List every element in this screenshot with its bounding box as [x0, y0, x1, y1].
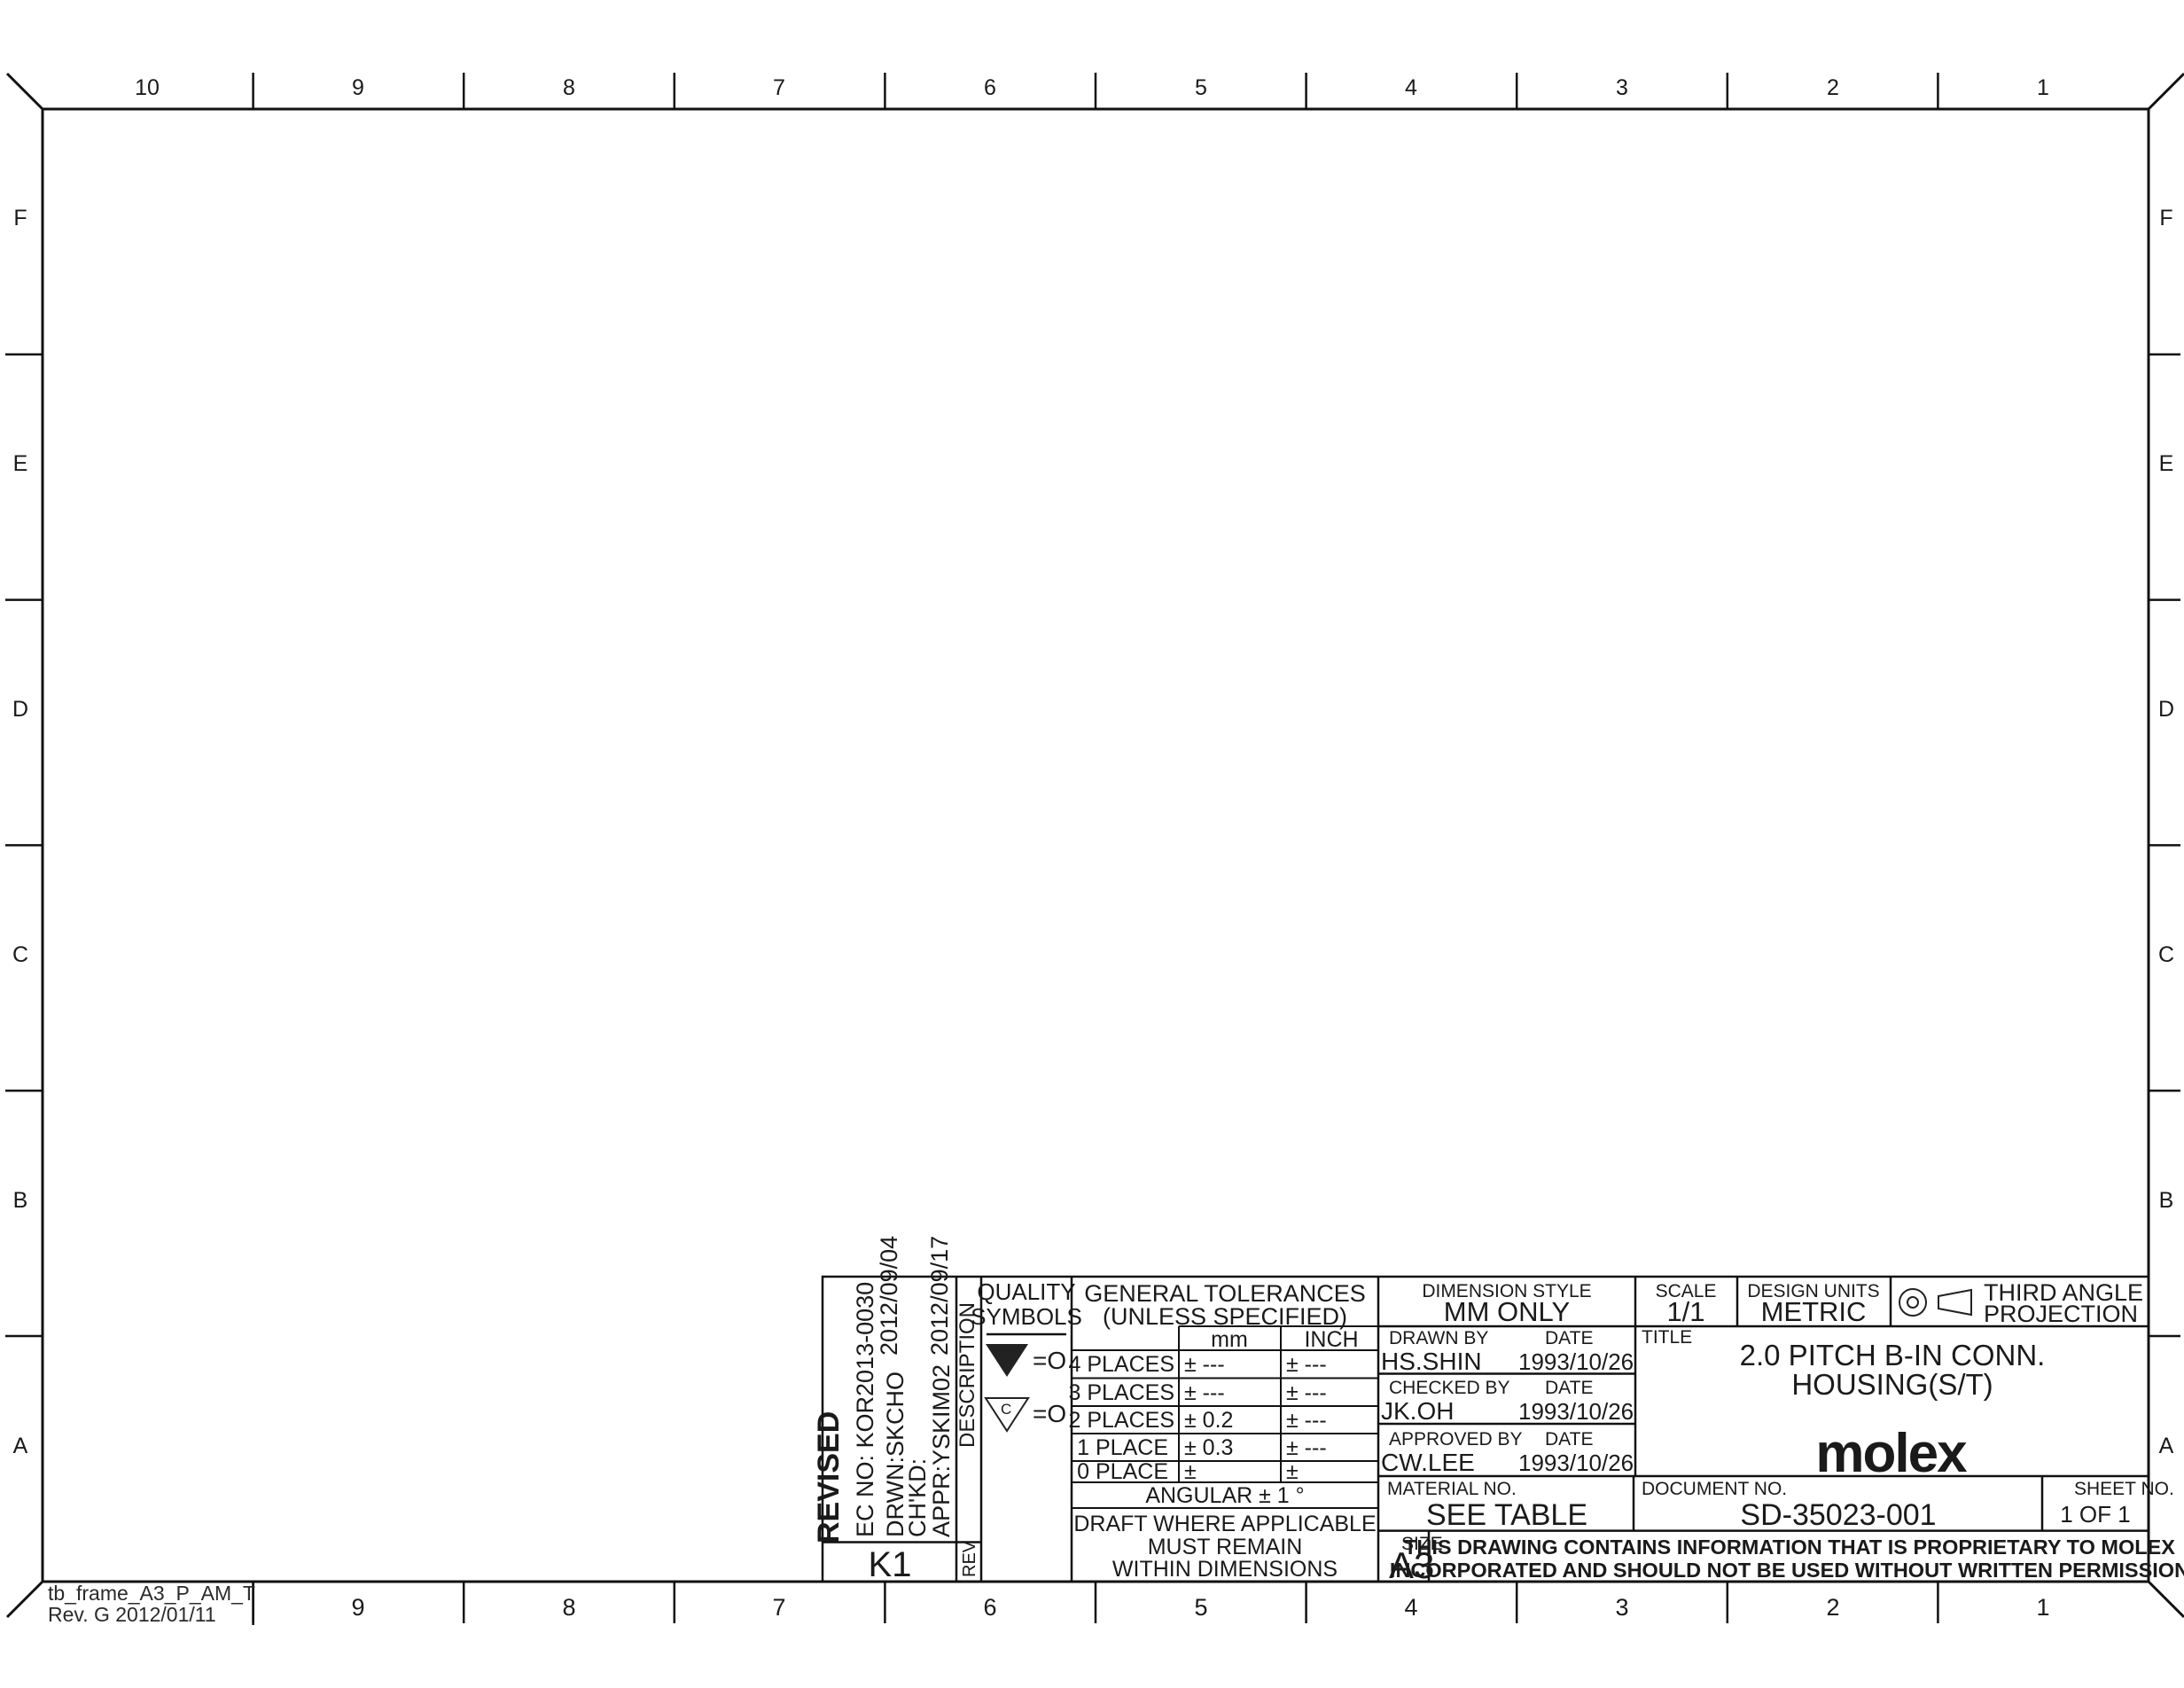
- svg-text:1/1: 1/1: [1666, 1296, 1704, 1327]
- svg-text:D: D: [12, 697, 28, 722]
- svg-text:7: 7: [773, 75, 785, 100]
- svg-text:2012/09/17: 2012/09/17: [926, 1236, 953, 1356]
- svg-text:PROJECTION: PROJECTION: [1984, 1301, 2138, 1327]
- svg-text:tb_frame_A3_P_AM_T: tb_frame_A3_P_AM_T: [48, 1582, 255, 1605]
- svg-text:B: B: [2159, 1188, 2174, 1213]
- svg-text:1: 1: [2036, 1594, 2049, 1621]
- svg-text:2012/09/04: 2012/09/04: [876, 1236, 902, 1356]
- svg-text:SD-35023-001: SD-35023-001: [1740, 1498, 1936, 1532]
- svg-text:WITHIN DIMENSIONS: WITHIN DIMENSIONS: [1112, 1557, 1338, 1582]
- svg-text:=O: =O: [1033, 1347, 1066, 1374]
- svg-text:± 0.2: ± 0.2: [1184, 1408, 1233, 1433]
- svg-text:A: A: [13, 1434, 28, 1458]
- svg-text:MM ONLY: MM ONLY: [1444, 1296, 1570, 1327]
- svg-text:B: B: [13, 1188, 28, 1213]
- svg-text:EC NO: KOR2013-0030: EC NO: KOR2013-0030: [852, 1282, 878, 1537]
- svg-text:DRAWN BY: DRAWN BY: [1389, 1328, 1488, 1348]
- svg-text:1 PLACE: 1 PLACE: [1077, 1435, 1168, 1460]
- svg-text:REVISED: REVISED: [812, 1411, 846, 1543]
- svg-text:HS.SHIN: HS.SHIN: [1381, 1348, 1482, 1375]
- svg-text:CHECKED BY: CHECKED BY: [1389, 1378, 1510, 1398]
- svg-text:ANGULAR ± 1 °: ANGULAR ± 1 °: [1145, 1483, 1304, 1508]
- svg-text:DATE: DATE: [1545, 1378, 1593, 1398]
- svg-text:± ---: ± ---: [1286, 1408, 1327, 1433]
- svg-text:SHEET NO.: SHEET NO.: [2074, 1479, 2174, 1499]
- svg-text:MUST REMAIN: MUST REMAIN: [1148, 1535, 1303, 1559]
- svg-text:F: F: [13, 206, 27, 231]
- svg-text:C: C: [1001, 1401, 1011, 1418]
- svg-text:8: 8: [562, 1594, 575, 1621]
- svg-text:HOUSING(S/T): HOUSING(S/T): [1791, 1368, 1993, 1401]
- svg-text:APPROVED BY: APPROVED BY: [1389, 1429, 1523, 1450]
- svg-text:A: A: [2159, 1434, 2174, 1458]
- svg-text:TITLE: TITLE: [1642, 1327, 1692, 1348]
- svg-text:JK.OH: JK.OH: [1381, 1397, 1454, 1425]
- svg-text:K1: K1: [869, 1545, 912, 1584]
- svg-text:REV: REV: [960, 1540, 979, 1577]
- svg-text:DOCUMENT NO.: DOCUMENT NO.: [1642, 1479, 1787, 1499]
- svg-text:DATE: DATE: [1545, 1429, 1593, 1450]
- svg-text:2: 2: [1826, 1594, 1839, 1621]
- svg-text:E: E: [13, 451, 28, 476]
- svg-text:molex: molex: [1815, 1423, 1968, 1484]
- svg-text:± ---: ± ---: [1286, 1380, 1327, 1405]
- svg-text:± ---: ± ---: [1184, 1352, 1225, 1377]
- svg-text:± ---: ± ---: [1184, 1380, 1225, 1405]
- svg-text:3: 3: [1616, 75, 1628, 100]
- svg-text:± ---: ± ---: [1286, 1435, 1327, 1460]
- svg-text:SYMBOLS: SYMBOLS: [971, 1303, 1082, 1330]
- svg-text:E: E: [2159, 451, 2174, 476]
- svg-text:1993/10/26: 1993/10/26: [1518, 1398, 1634, 1425]
- svg-text:1993/10/26: 1993/10/26: [1518, 1450, 1634, 1476]
- svg-text:0 PLACE: 0 PLACE: [1077, 1459, 1168, 1484]
- svg-text:7: 7: [772, 1594, 785, 1621]
- svg-text:10: 10: [135, 75, 160, 100]
- svg-text:D: D: [2158, 697, 2174, 722]
- svg-text:2 PLACES: 2 PLACES: [1068, 1408, 1174, 1433]
- svg-text:MATERIAL NO.: MATERIAL NO.: [1387, 1479, 1517, 1499]
- svg-text:METRIC: METRIC: [1761, 1296, 1867, 1327]
- svg-text:DRAFT WHERE APPLICABLE: DRAFT WHERE APPLICABLE: [1073, 1512, 1376, 1536]
- svg-text:±: ±: [1286, 1459, 1299, 1484]
- svg-text:3 PLACES: 3 PLACES: [1068, 1380, 1174, 1405]
- svg-text:2.0 PITCH B-IN CONN.: 2.0 PITCH B-IN CONN.: [1740, 1339, 2046, 1371]
- svg-text:5: 5: [1194, 1594, 1207, 1621]
- svg-text:3: 3: [1615, 1594, 1628, 1621]
- svg-text:4: 4: [1405, 75, 1417, 100]
- svg-text:1: 1: [2037, 75, 2049, 100]
- svg-text:8: 8: [563, 75, 575, 100]
- svg-text:mm: mm: [1211, 1327, 1248, 1352]
- svg-text:± ---: ± ---: [1286, 1352, 1327, 1377]
- svg-text:5: 5: [1195, 75, 1207, 100]
- svg-text:CH'KD:: CH'KD:: [904, 1458, 931, 1537]
- svg-text:(UNLESS SPECIFIED): (UNLESS SPECIFIED): [1103, 1303, 1347, 1330]
- svg-text:INCORPORATED AND SHOULD NOT BE: INCORPORATED AND SHOULD NOT BE USED WITH…: [1390, 1559, 2184, 1582]
- svg-text:± 0.3: ± 0.3: [1184, 1435, 1233, 1460]
- svg-text:6: 6: [984, 75, 996, 100]
- svg-text:4: 4: [1404, 1594, 1417, 1621]
- svg-text:F: F: [2159, 206, 2172, 231]
- svg-text:6: 6: [983, 1594, 996, 1621]
- svg-text:CW.LEE: CW.LEE: [1381, 1449, 1475, 1476]
- svg-text:THIS DRAWING CONTAINS INFORMAT: THIS DRAWING CONTAINS INFORMATION THAT I…: [1404, 1536, 2175, 1559]
- svg-text:SEE TABLE: SEE TABLE: [1426, 1498, 1587, 1532]
- svg-text:Rev. G 2012/01/11: Rev. G 2012/01/11: [48, 1603, 216, 1626]
- svg-text:QUALITY: QUALITY: [977, 1278, 1075, 1305]
- svg-text:4 PLACES: 4 PLACES: [1068, 1352, 1174, 1377]
- svg-text:DATE: DATE: [1545, 1328, 1593, 1348]
- svg-text:C: C: [12, 942, 28, 967]
- svg-text:APPR:YSKIM02: APPR:YSKIM02: [928, 1364, 955, 1537]
- svg-text:9: 9: [352, 75, 364, 100]
- svg-text:=O: =O: [1033, 1400, 1066, 1427]
- svg-text:C: C: [2158, 942, 2174, 967]
- svg-text:±: ±: [1184, 1459, 1197, 1484]
- svg-text:9: 9: [351, 1594, 364, 1621]
- svg-text:1993/10/26: 1993/10/26: [1518, 1348, 1634, 1375]
- svg-text:INCH: INCH: [1304, 1327, 1358, 1352]
- svg-text:1 OF 1: 1 OF 1: [2060, 1501, 2130, 1528]
- svg-text:2: 2: [1827, 75, 1839, 100]
